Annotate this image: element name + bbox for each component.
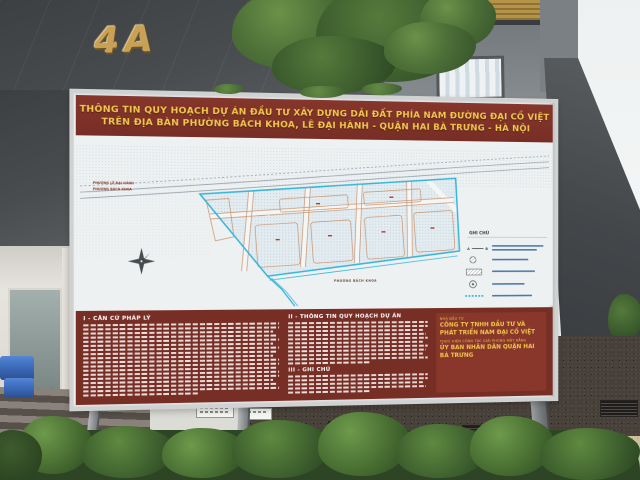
wall-vent: [600, 400, 638, 417]
legend-hatched-circle-icon: [470, 257, 476, 263]
legend-marker-b: B: [485, 247, 488, 251]
planning-map: PHƯỜNG LÊ ĐẠI HÀNH PHƯỜNG BÁCH KHOA PHƯỜ…: [76, 135, 553, 309]
section-legal-header: I - CĂN CỨ PHÁP LÝ: [83, 314, 279, 322]
section-planning-header: II - THÔNG TIN QUY HOẠCH DỰ ÁN: [288, 313, 427, 320]
corner-foliage: [608, 294, 640, 342]
blue-plastic-chair: [0, 356, 34, 380]
legend-hatched-area-icon: [466, 269, 481, 275]
ward-label-top1: PHƯỜNG LÊ ĐẠI HÀNH: [93, 180, 134, 185]
planning-text-lines: [288, 321, 427, 365]
planning-billboard: THÔNG TIN QUY HOẠCH DỰ ÁN ĐẦU TƯ XÂY DỰN…: [69, 89, 558, 412]
section-parties: NHÀ ĐẦU TƯ CÔNG TY TNHH ĐẦU TƯ VÀ PHÁT T…: [436, 312, 546, 393]
photo-scene: 4A THÔNG TIN QUY HOẠCH DỰ ÁN ĐẦU TƯ XÂY …: [0, 0, 640, 480]
planning-map-svg: PHƯỜNG LÊ ĐẠI HÀNH PHƯỜNG BÁCH KHOA PHƯỜ…: [76, 135, 553, 309]
notes-text-lines: [288, 373, 427, 393]
section-planning-info: II - THÔNG TIN QUY HOẠCH DỰ ÁN III - GHI…: [288, 313, 427, 396]
section-legal-basis: I - CĂN CỨ PHÁP LÝ: [83, 314, 279, 399]
section-notes-header: III - GHI CHÚ: [288, 365, 427, 373]
investor-name: CÔNG TY TNHH ĐẦU TƯ VÀ PHÁT TRIỂN NAM ĐẠ…: [440, 321, 543, 337]
legend-title: GHI CHÚ: [469, 230, 489, 237]
ward-label-top2: PHƯỜNG BÁCH KHOA: [93, 186, 133, 191]
granite-base-wall: [546, 336, 640, 400]
legend-marker-a: A: [467, 247, 470, 251]
clearance-name: ỦY BAN NHÂN DÂN QUẬN HAI BÀ TRƯNG: [440, 343, 543, 359]
legal-text-lines: [83, 322, 279, 396]
building-number: 4A: [91, 19, 160, 62]
billboard-text-panel: I - CĂN CỨ PHÁP LÝ II - THÔNG TIN QUY HO…: [76, 307, 553, 405]
ward-label-bottom: PHƯỜNG BÁCH KHOA: [334, 278, 377, 283]
blue-plastic-chair: [4, 378, 34, 398]
